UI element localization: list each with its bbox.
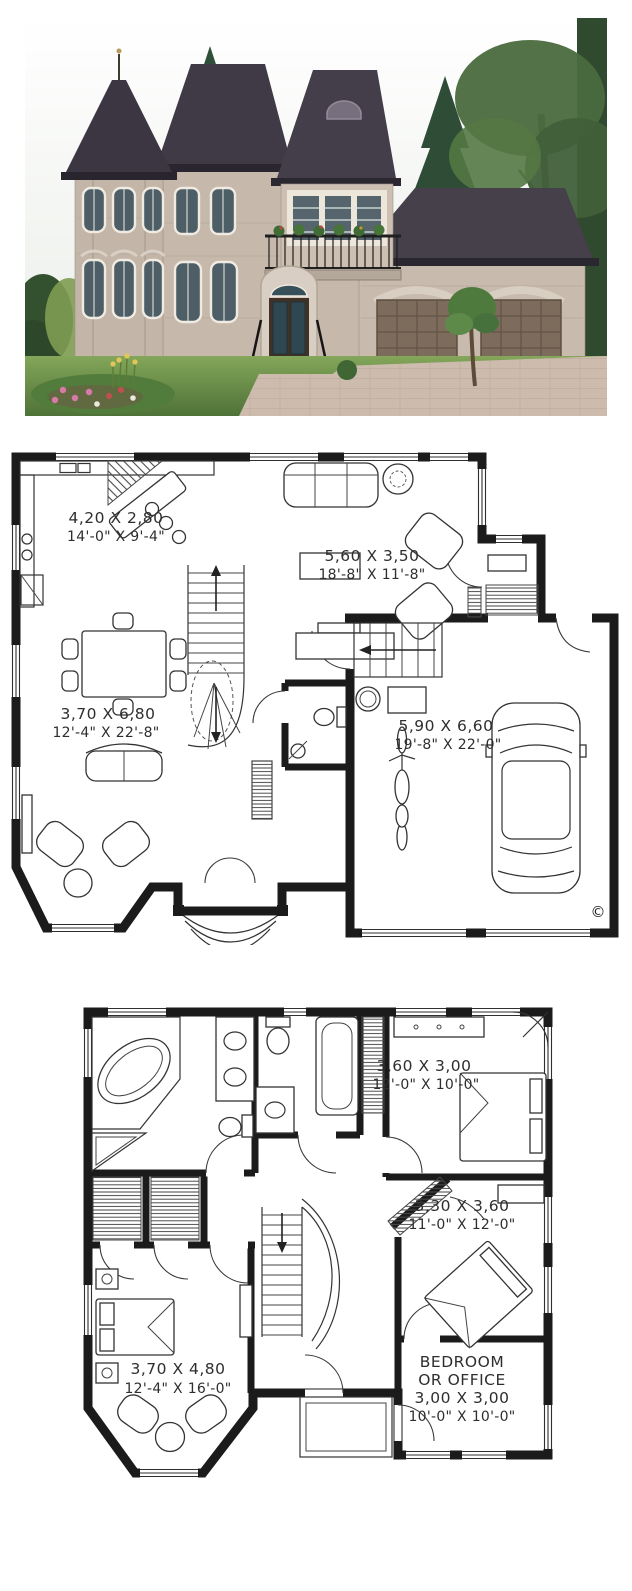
- toilet-tank: [266, 1017, 290, 1027]
- bedroom3-dim-imperial: 11'-0" X 12'-0": [408, 1217, 515, 1233]
- vanity: [256, 1087, 294, 1133]
- round-table: [156, 1423, 185, 1452]
- plant: [383, 464, 413, 494]
- toilet-tank: [242, 1115, 253, 1137]
- master-dim-metric: 3,70 X 4,80: [131, 1360, 226, 1378]
- dining-dim-imperial: 12'-4" X 22'-8": [52, 725, 159, 741]
- hall-closet: [252, 761, 272, 819]
- stool: [173, 531, 186, 544]
- bedroom3-dim-metric: 3,30 X 3,60: [415, 1197, 510, 1215]
- bush: [337, 360, 357, 380]
- console-table: [22, 795, 32, 853]
- garage-dim-metric: 5,90 X 6,60: [399, 717, 494, 735]
- dresser: [240, 1285, 252, 1337]
- second-floor-plan: 3,60 X 3,00 12'-0" X 10'-0" 3,30 X 3,60 …: [0, 985, 632, 1560]
- toilet: [219, 1118, 241, 1137]
- office-dim-imperial: 10'-0" X 10'-0": [408, 1409, 515, 1425]
- kitchen-dim-metric: 4,20 X 2,80: [69, 509, 164, 527]
- copyright-mark: ©: [591, 903, 606, 921]
- sink: [291, 744, 305, 758]
- second-floor-plan-svg: 3,60 X 3,00 12'-0" X 10'-0" 3,30 X 3,60 …: [0, 985, 632, 1560]
- side-mirror: [580, 745, 586, 757]
- office-dim-metric: 3,00 X 3,00: [415, 1389, 510, 1407]
- mudroom-steps: [486, 585, 538, 615]
- bookcase: [468, 587, 481, 617]
- bedroom2-dim-metric: 3,60 X 3,00: [377, 1057, 472, 1075]
- pillow: [530, 1079, 542, 1113]
- office-title-line2: OR OFFICE: [418, 1371, 506, 1389]
- nightstand: [96, 1363, 118, 1383]
- walk-in-closet: [151, 1177, 199, 1240]
- walk-in-closet: [93, 1177, 141, 1240]
- toilet-tank: [337, 707, 346, 727]
- dresser: [394, 1017, 484, 1037]
- round-table: [64, 869, 92, 897]
- sofa: [284, 463, 378, 507]
- toilet: [314, 709, 334, 726]
- porch-roof-outline: [300, 1397, 392, 1457]
- dining-chair: [62, 671, 78, 691]
- balcony-railing: [265, 236, 401, 268]
- pillow: [100, 1329, 114, 1351]
- dining-dim-metric: 3,70 X 6,80: [61, 705, 156, 723]
- pillow: [100, 1303, 114, 1325]
- master-dim-imperial: 12'-4" X 16'-0": [124, 1381, 231, 1397]
- furnace: [388, 687, 426, 713]
- loveseat: [86, 744, 162, 781]
- toilet: [267, 1028, 289, 1054]
- living-dim-imperial: 18'-8" X 11'-8": [318, 567, 425, 583]
- kitchen-dim-imperial: 14'-0" X 9'-4": [67, 529, 165, 545]
- dining-chair: [170, 671, 186, 691]
- living-dim-metric: 5,60 X 3,50: [325, 547, 420, 565]
- office-title-line1: BEDROOM: [420, 1353, 504, 1371]
- nightstand: [96, 1269, 118, 1289]
- dining-chair: [62, 639, 78, 659]
- bedroom2-dim-imperial: 12'-0" X 10'-0": [372, 1077, 479, 1093]
- utilities: [356, 687, 426, 713]
- page: { "house_rendering": { "description_icon…: [0, 0, 632, 1591]
- house-rendering-svg: [25, 18, 607, 416]
- car: [486, 703, 586, 893]
- house-rendering: [25, 18, 607, 416]
- dining-chair: [170, 639, 186, 659]
- media-cabinet: [296, 633, 394, 659]
- double-vanity: [216, 1017, 254, 1101]
- entry-door: [261, 266, 317, 358]
- first-floor-plan-svg: 4,20 X 2,80 14'-0" X 9'-4" 5,60 X 3,50 1…: [0, 435, 632, 945]
- garage-dim-imperial: 19'-8" X 22'-0": [394, 737, 501, 753]
- first-floor-plan: 4,20 X 2,80 14'-0" X 9'-4" 5,60 X 3,50 1…: [0, 435, 632, 945]
- pillow: [530, 1119, 542, 1153]
- bench: [488, 555, 526, 571]
- dining-chair: [113, 613, 133, 629]
